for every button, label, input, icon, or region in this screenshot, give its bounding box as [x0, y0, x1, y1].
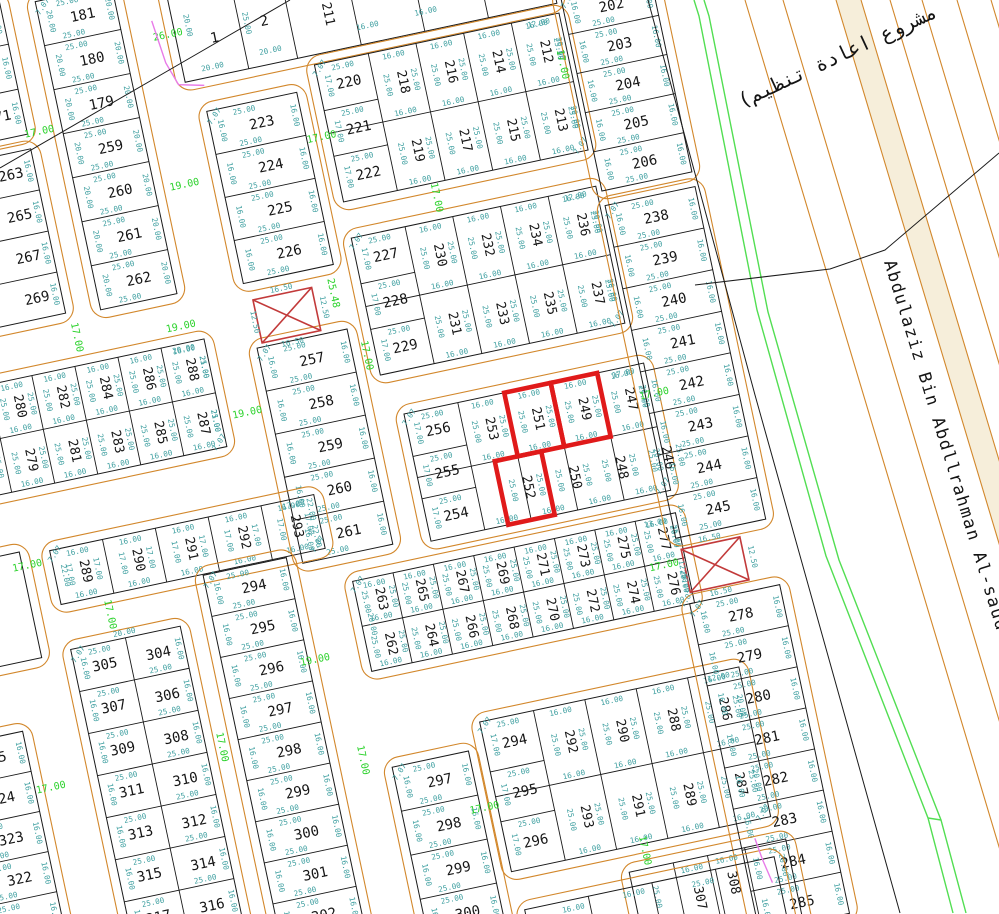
cad-viewport: 7.0725.0025.0016.0016.0025.0025.0016.001… [0, 0, 999, 914]
map-canvas[interactable]: 7.0725.0025.0016.0016.0025.0025.0016.001… [0, 0, 999, 914]
